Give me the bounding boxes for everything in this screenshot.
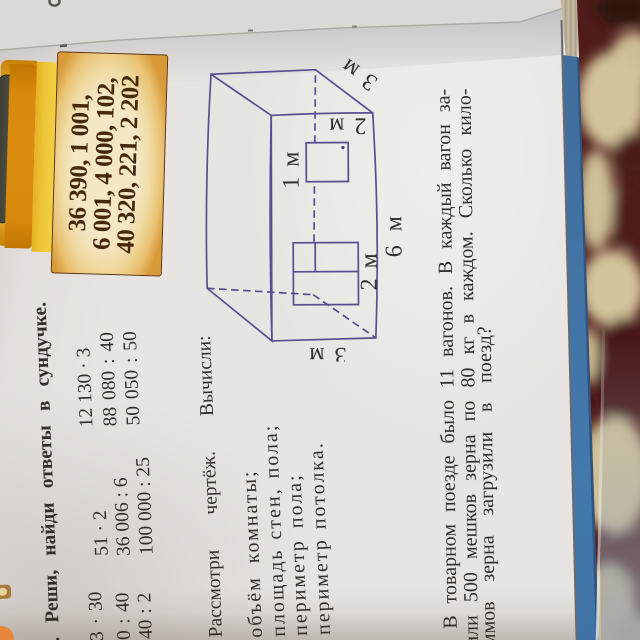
svg-text:2 м: 2 м: [327, 112, 366, 138]
svg-text:1 м: 1 м: [278, 150, 304, 189]
svg-text:2 м: 2 м: [356, 251, 382, 290]
svg-text:6 м: 6 м: [381, 214, 407, 258]
svg-text:3 м: 3 м: [307, 342, 346, 362]
